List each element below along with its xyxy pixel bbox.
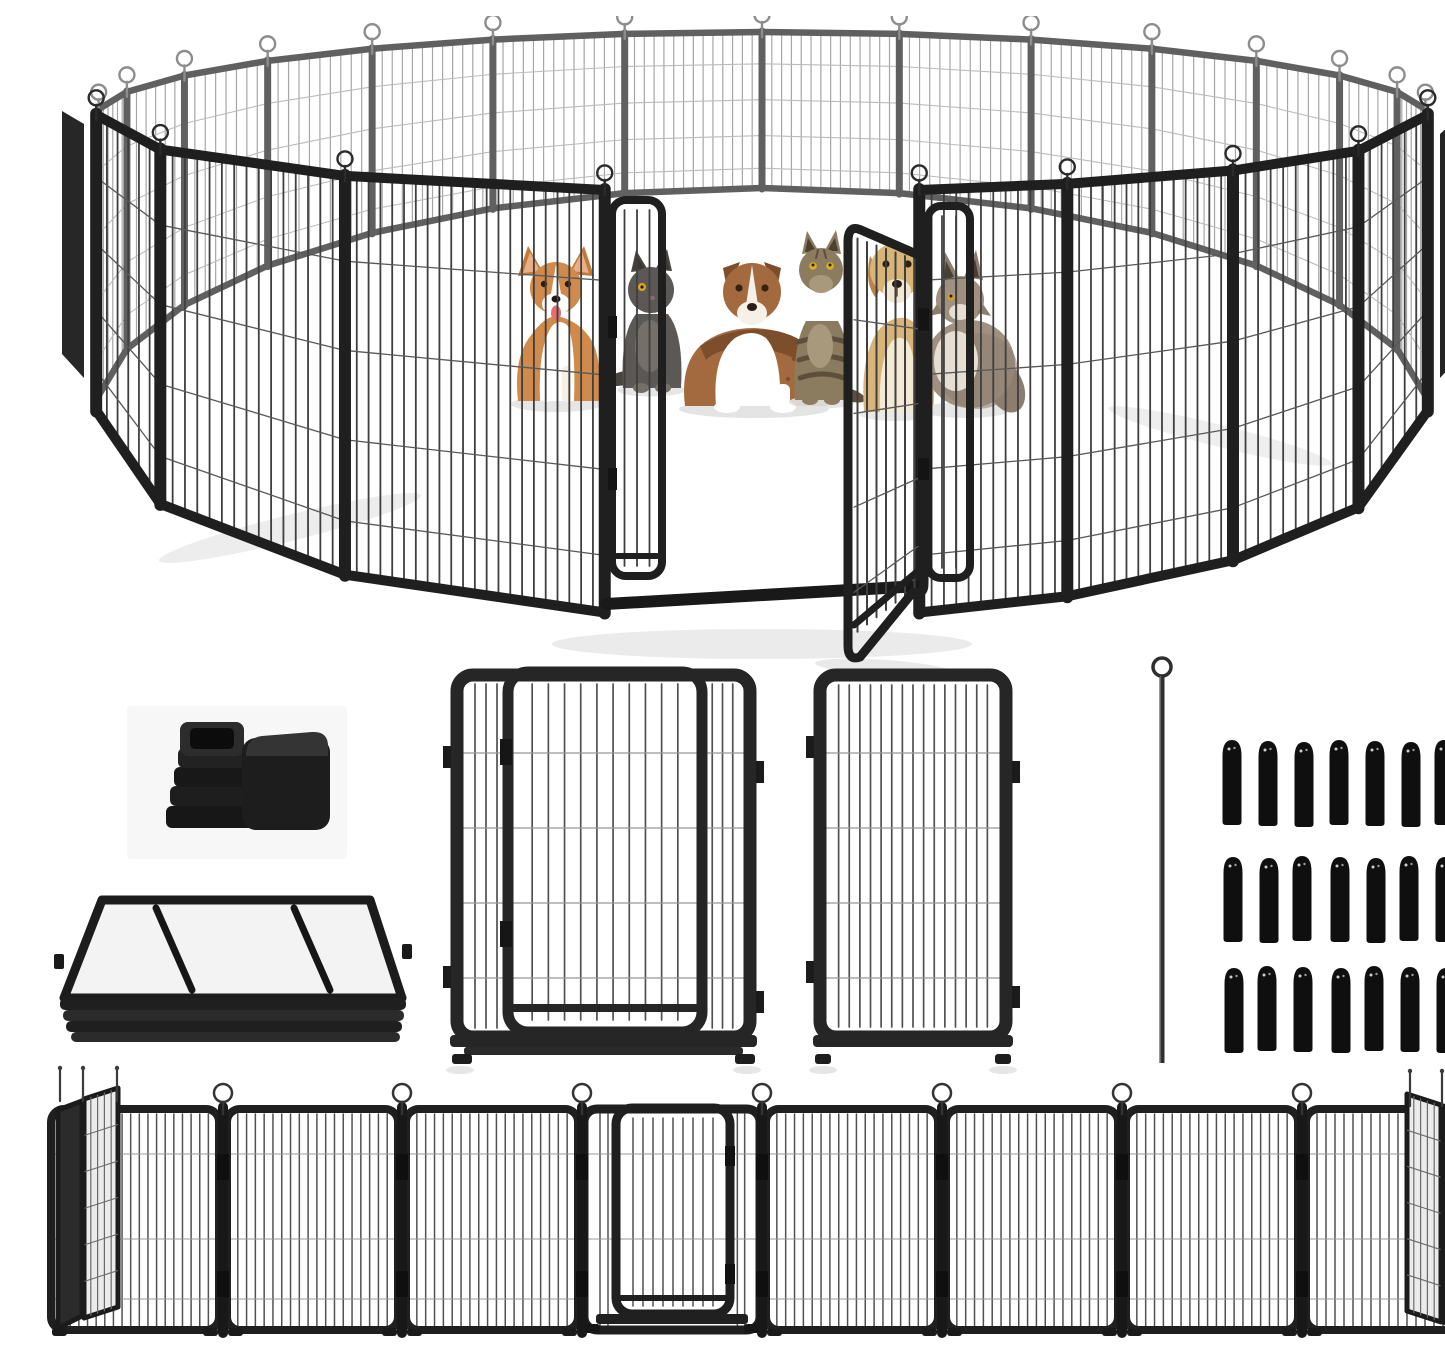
fence-panel xyxy=(1126,1109,1298,1336)
fence-panel xyxy=(99,92,127,396)
rubber-cap xyxy=(1223,740,1242,825)
fence-panel xyxy=(1397,92,1425,396)
angled-right-pair xyxy=(1407,1069,1445,1333)
animals xyxy=(511,230,1033,421)
corner-caps xyxy=(127,706,347,859)
scene-svg xyxy=(40,16,1445,1339)
playpen-ring xyxy=(62,16,1445,681)
unfolded-panel-row xyxy=(51,1066,1445,1336)
ground-anchor-rod xyxy=(1153,658,1171,1063)
rubber-cap xyxy=(1259,741,1278,826)
fence-panel xyxy=(160,150,345,575)
fence-panel xyxy=(762,32,899,193)
sample-door-panel xyxy=(443,672,764,1074)
rubber-caps-grid xyxy=(1223,740,1445,1053)
row-door-panel xyxy=(584,1108,760,1333)
rubber-cap xyxy=(1224,857,1243,942)
rubber-cap xyxy=(1258,966,1277,1051)
rubber-cap xyxy=(1293,856,1312,941)
rubber-cap xyxy=(1365,966,1384,1051)
fence-panel xyxy=(625,32,762,193)
rubber-cap xyxy=(1367,858,1386,943)
fence-panel xyxy=(946,1109,1118,1336)
kit-parts xyxy=(54,658,1445,1074)
rubber-cap xyxy=(1225,968,1244,1053)
rubber-cap xyxy=(1294,967,1313,1052)
rubber-cap xyxy=(1435,740,1445,825)
rubber-cap xyxy=(1401,967,1420,1052)
angled-panel xyxy=(1407,1094,1441,1322)
product-image-page xyxy=(0,16,1445,1339)
gate-assembly xyxy=(606,200,970,658)
rubber-cap xyxy=(1332,968,1351,1053)
fence-panel xyxy=(766,1109,938,1336)
angled-panel xyxy=(58,1101,82,1328)
product-montage xyxy=(40,16,1445,1339)
rubber-cap xyxy=(1260,858,1279,943)
angled-panel xyxy=(84,1088,118,1318)
rubber-cap xyxy=(1436,857,1445,942)
angled-left-pair xyxy=(58,1066,119,1328)
fence-panel xyxy=(96,115,160,504)
folded-panel-stack xyxy=(54,900,412,1042)
rubber-cap xyxy=(1402,742,1421,827)
rubber-cap xyxy=(1437,968,1445,1053)
cover-cap xyxy=(242,732,330,830)
fence-panel xyxy=(1067,171,1233,597)
sample-plain-panel xyxy=(806,675,1020,1074)
fence-panel xyxy=(1340,76,1398,349)
rubber-cap xyxy=(1331,857,1350,942)
rubber-cap xyxy=(1330,740,1349,825)
rubber-cap xyxy=(1400,856,1419,941)
fence-panel xyxy=(227,1109,398,1336)
fence-panel xyxy=(406,1109,578,1336)
animal-tabby-cat xyxy=(789,230,867,409)
rubber-cap xyxy=(1295,742,1314,827)
rubber-cap xyxy=(1366,741,1385,826)
fence-panel xyxy=(1256,61,1339,305)
